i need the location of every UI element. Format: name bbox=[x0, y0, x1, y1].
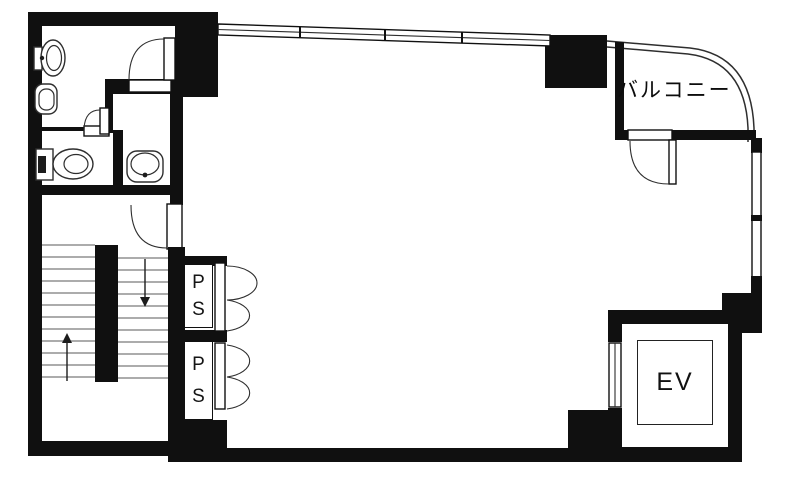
door-swing-arc bbox=[131, 205, 167, 248]
bottom-left-wall bbox=[28, 441, 185, 456]
tank-toilet-icon bbox=[36, 149, 93, 180]
balcony bbox=[607, 41, 756, 184]
hall-main-divider-wall bbox=[170, 92, 183, 205]
balcony-label: バルコニー bbox=[617, 74, 732, 104]
washroom-main-door bbox=[129, 38, 175, 80]
door-leaf bbox=[164, 38, 175, 80]
ps-lower-double-door bbox=[227, 345, 250, 409]
elevator-label: EV bbox=[656, 368, 693, 397]
pipe-space-letter: P bbox=[192, 355, 205, 374]
stair-treads-left bbox=[42, 245, 95, 377]
stair-treads-right bbox=[118, 258, 168, 378]
balcony-window-sill bbox=[628, 130, 672, 140]
door-leaf bbox=[100, 108, 109, 134]
down-arrow-icon bbox=[140, 259, 150, 307]
pipe-space-upper: P S bbox=[184, 264, 213, 328]
stair-center-divider bbox=[95, 245, 118, 382]
pipe-space-letter: S bbox=[192, 387, 205, 406]
window-mullion bbox=[751, 215, 762, 221]
left-wall bbox=[28, 12, 42, 456]
top-right-pillar bbox=[545, 35, 607, 88]
elevator-car: EV bbox=[637, 340, 713, 425]
right-window-band bbox=[751, 138, 762, 295]
top-window-band bbox=[218, 24, 550, 46]
pipe-space-lower: P S bbox=[184, 341, 213, 420]
staircase bbox=[42, 245, 168, 382]
wc-bottom-wall bbox=[28, 185, 175, 195]
door-swing-arc bbox=[129, 39, 164, 80]
wc-door bbox=[84, 108, 109, 136]
ps-bottom-bar bbox=[182, 420, 227, 462]
ps-lower-door-jamb bbox=[215, 343, 225, 409]
balcony-door-swing-arc bbox=[630, 141, 669, 184]
wash-basin-icon bbox=[127, 151, 163, 182]
pipe-space-letter: S bbox=[192, 300, 205, 319]
up-arrow-icon bbox=[62, 333, 72, 381]
ps-upper-double-door bbox=[227, 266, 257, 331]
ps-upper-door-jamb bbox=[215, 263, 225, 331]
wc-top-wall bbox=[33, 127, 84, 131]
floor-plan: バルコニー P S P S EV bbox=[0, 0, 787, 479]
washroom-door-sill bbox=[129, 80, 171, 92]
balcony-door-leaf bbox=[669, 140, 676, 184]
stair-hall-door bbox=[131, 204, 182, 249]
pipe-space-letter: P bbox=[192, 273, 205, 292]
utility-sink-icon bbox=[35, 84, 57, 114]
window-cap-top bbox=[751, 138, 762, 153]
door-leaf bbox=[167, 204, 182, 249]
window-cap-bottom bbox=[751, 276, 762, 295]
